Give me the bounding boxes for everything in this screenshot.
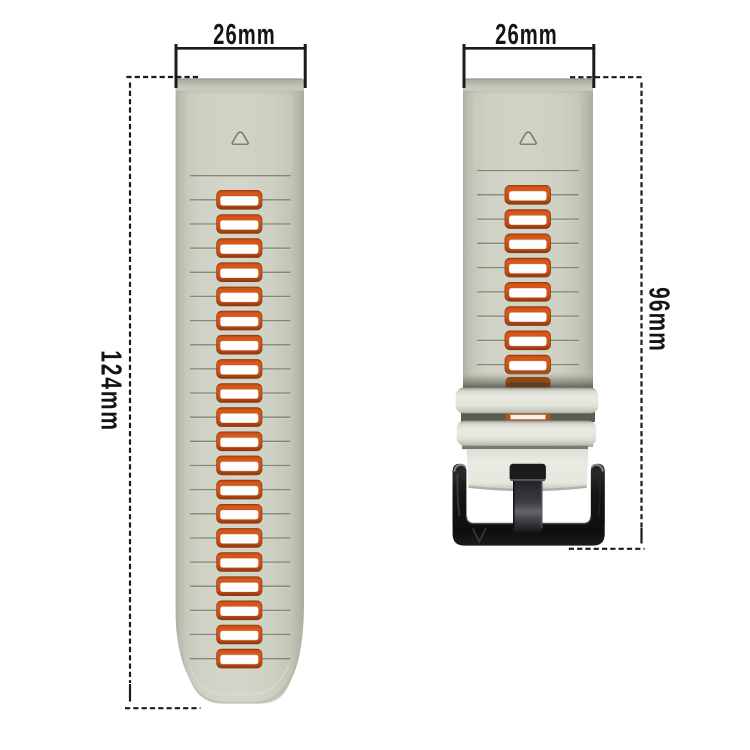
svg-text:96mm: 96mm bbox=[643, 287, 675, 352]
svg-text:26mm: 26mm bbox=[495, 20, 558, 51]
svg-text:26mm: 26mm bbox=[213, 20, 276, 51]
svg-text:124mm: 124mm bbox=[95, 350, 127, 432]
